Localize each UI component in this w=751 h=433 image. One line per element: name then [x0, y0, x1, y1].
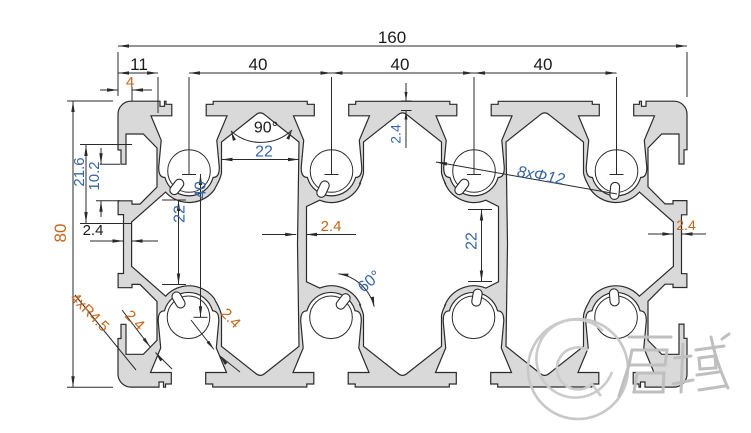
- svg-text:11: 11: [130, 55, 148, 74]
- svg-text:40: 40: [534, 55, 553, 74]
- svg-text:22: 22: [255, 144, 273, 161]
- svg-text:60°: 60°: [355, 268, 384, 297]
- svg-text:22: 22: [464, 232, 481, 250]
- svg-text:2.4: 2.4: [321, 218, 342, 235]
- svg-text:4: 4: [126, 74, 134, 91]
- svg-text:80: 80: [51, 224, 70, 243]
- svg-text:40: 40: [193, 181, 210, 199]
- svg-text:4xR4.5: 4xR4.5: [67, 290, 113, 336]
- svg-text:2.4: 2.4: [676, 217, 696, 233]
- svg-text:2.4: 2.4: [83, 222, 104, 239]
- svg-text:90°: 90°: [254, 120, 278, 137]
- svg-text:2.4: 2.4: [387, 124, 403, 144]
- svg-text:10.2: 10.2: [86, 161, 103, 190]
- svg-text:160: 160: [378, 28, 406, 47]
- svg-text:40: 40: [391, 55, 410, 74]
- svg-text:40: 40: [249, 55, 268, 74]
- svg-text:22: 22: [172, 205, 189, 223]
- svg-text:8xΦ12: 8xΦ12: [516, 164, 566, 189]
